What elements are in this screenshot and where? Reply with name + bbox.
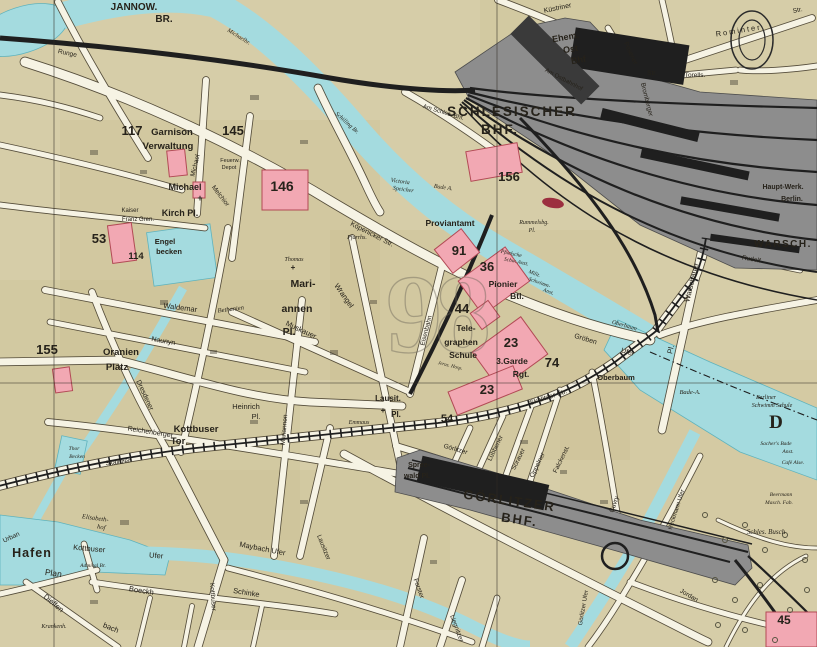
map-label-warsch: WARSCH. xyxy=(754,239,812,250)
map-label-114: 114 xyxy=(128,251,144,262)
map-label-45: 45 xyxy=(777,613,791,627)
map-label-berlin: Berlin. xyxy=(781,196,803,203)
map-label-emmaus: Emmaus xyxy=(348,420,370,426)
map-label-proviantamt: Proviantamt xyxy=(425,218,474,228)
map-label-caf-alse: Café Alse. xyxy=(782,459,805,466)
map-sheet: 98JANNOW.BR.Michaelbr.RungeKüstrinerEhem… xyxy=(0,0,817,647)
map-label-74: 74 xyxy=(545,355,560,370)
map-label-verwaltung: Verwaltung xyxy=(143,141,194,152)
map-label-feuerw: Feuerw. xyxy=(220,158,240,164)
map-label-schule: Schule xyxy=(449,350,477,360)
map-label-155: 155 xyxy=(36,342,58,357)
map-label-rummelsbg: Rummelsbg. xyxy=(518,220,549,226)
map-label-engel: Engel xyxy=(155,237,175,246)
map-label-spree: Spree- xyxy=(408,462,430,469)
map-label-kaiser: Kaiser xyxy=(121,208,138,214)
building-155 xyxy=(52,367,72,393)
map-label-23: 23 xyxy=(504,335,518,350)
map-label-91: 91 xyxy=(452,243,466,258)
map-label-: + xyxy=(381,406,386,415)
historical-map: 98JANNOW.BR.Michaelbr.RungeKüstrinerEhem… xyxy=(0,0,817,647)
map-label-3-garde: 3.Garde xyxy=(496,356,528,366)
map-label-franz-gren: Franz Gren. xyxy=(122,217,154,223)
map-label-masch-fab: Masch. Fab. xyxy=(764,500,793,506)
map-label-torells: Torells. xyxy=(685,72,706,79)
map-label-schwimm-schule: Schwimm Schule xyxy=(752,403,793,409)
map-label-36: 36 xyxy=(480,259,494,274)
map-label-becken: Becken xyxy=(69,454,85,460)
map-label-graphen: graphen xyxy=(444,337,478,347)
map-label-becken: becken xyxy=(156,247,182,256)
map-label-schlesischer: SCHLESISCHER xyxy=(447,104,577,119)
map-label-oberbaum: Oberbaum xyxy=(597,373,635,382)
map-label-annen: annen xyxy=(282,303,313,315)
map-label-beermann: Beermann xyxy=(770,492,793,498)
map-label-9: 9 xyxy=(386,253,442,377)
map-label-br: BR. xyxy=(155,14,172,25)
map-label-thor: Thor xyxy=(69,446,81,452)
map-label-bade-a: Bade-A. xyxy=(679,389,700,396)
map-label-krankenh: Krankenh. xyxy=(40,624,66,630)
map-label-heinrich: Heinrich xyxy=(232,402,260,411)
map-label-haupt-werk: Haupt-Werk. xyxy=(762,184,803,191)
map-label-lausit: Lausit. xyxy=(375,394,401,403)
map-label-wald-pl: wald Pl. xyxy=(403,473,430,480)
map-label-berliner: Berliner xyxy=(756,395,777,401)
map-label-156: 156 xyxy=(498,169,520,184)
map-label-bhf: BHF. xyxy=(481,122,519,137)
map-label-schles-busch: Schles. Busch xyxy=(747,528,786,536)
map-label-sacher-s-bade: Sacher's Bade xyxy=(760,441,792,447)
map-label-anst: Anst. xyxy=(781,449,793,455)
map-label-117: 117 xyxy=(122,123,143,138)
map-label-jannow: JANNOW. xyxy=(111,2,158,13)
map-label-146: 146 xyxy=(270,178,294,194)
map-label-btl: Btl. xyxy=(510,291,524,301)
map-label-53: 53 xyxy=(92,231,106,246)
map-label-michael: Michael xyxy=(168,182,201,192)
map-label-admiral-br: Admiral Br. xyxy=(79,563,106,569)
map-label-23: 23 xyxy=(480,382,494,397)
map-label-pl: Pl. xyxy=(528,228,536,234)
map-label-str: Str. xyxy=(647,70,657,77)
map-label-tele: Tele- xyxy=(456,323,475,333)
map-label-kottbuser: Kottbuser xyxy=(174,424,219,435)
map-label-mari: Mari- xyxy=(290,278,316,290)
map-label-pionier: Pionier xyxy=(489,279,519,289)
map-label-145: 145 xyxy=(222,123,244,138)
map-label-54: 54 xyxy=(441,413,454,425)
map-label-oranien: Oranien xyxy=(103,347,139,358)
map-label-: + xyxy=(197,193,202,203)
map-label-44: 44 xyxy=(455,301,470,316)
building-117 xyxy=(167,149,188,177)
map-label-kirch-pl: Kirch Pl. xyxy=(162,208,199,218)
map-label-pfarrhs: Pfarrhs. xyxy=(346,234,367,241)
map-label-platz: Platz xyxy=(106,362,128,373)
map-label-tor: Tor xyxy=(171,436,186,447)
map-label-rgt: Rgt. xyxy=(513,369,530,379)
map-label-d: D xyxy=(769,412,783,433)
map-label-depot: Depot xyxy=(222,165,237,171)
map-label-hafen: Hafen xyxy=(12,546,52,560)
map-label-pl: Pl. xyxy=(391,410,401,419)
map-label-pl: Pl. xyxy=(252,412,261,421)
map-label-: + xyxy=(291,263,296,272)
map-label-ufer: Ufer xyxy=(149,550,164,560)
map-label-garnison: Garnison xyxy=(151,127,193,138)
